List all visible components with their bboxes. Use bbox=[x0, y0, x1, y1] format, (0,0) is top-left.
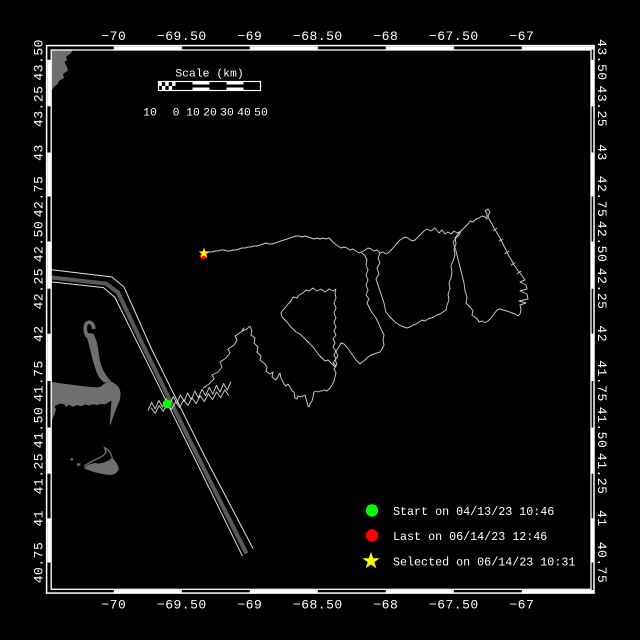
svg-text:42.50: 42.50 bbox=[32, 221, 47, 263]
svg-text:41.25: 41.25 bbox=[32, 453, 47, 495]
svg-text:42.50: 42.50 bbox=[594, 221, 609, 263]
svg-text:43.50: 43.50 bbox=[594, 39, 609, 81]
svg-text:0: 0 bbox=[173, 108, 180, 120]
svg-text:43: 43 bbox=[594, 144, 609, 161]
svg-text:43.25: 43.25 bbox=[594, 86, 609, 128]
svg-text:−67.50: −67.50 bbox=[429, 598, 479, 613]
svg-text:43.25: 43.25 bbox=[32, 86, 47, 128]
svg-text:40.75: 40.75 bbox=[32, 542, 47, 584]
svg-text:−68: −68 bbox=[373, 598, 398, 613]
svg-text:30: 30 bbox=[220, 108, 234, 120]
svg-text:42: 42 bbox=[594, 325, 609, 342]
svg-text:42.25: 42.25 bbox=[32, 268, 47, 310]
svg-text:−69: −69 bbox=[237, 29, 262, 44]
svg-text:42.25: 42.25 bbox=[594, 268, 609, 310]
svg-text:41.75: 41.75 bbox=[32, 360, 47, 402]
svg-text:41.50: 41.50 bbox=[594, 407, 609, 449]
svg-text:42.75: 42.75 bbox=[594, 176, 609, 218]
svg-text:−67: −67 bbox=[509, 598, 534, 613]
svg-text:42.75: 42.75 bbox=[32, 176, 47, 218]
svg-text:−69.50: −69.50 bbox=[157, 598, 207, 613]
svg-text:−68.50: −68.50 bbox=[293, 29, 343, 44]
svg-text:−70: −70 bbox=[101, 29, 126, 44]
svg-text:43.50: 43.50 bbox=[32, 39, 47, 81]
svg-text:41: 41 bbox=[32, 510, 47, 527]
svg-text:Start on 04/13/23 10:46: Start on 04/13/23 10:46 bbox=[393, 505, 554, 519]
svg-text:−69.50: −69.50 bbox=[157, 29, 207, 44]
svg-text:10: 10 bbox=[143, 108, 157, 120]
svg-text:−67: −67 bbox=[509, 29, 534, 44]
svg-text:−68.50: −68.50 bbox=[293, 598, 343, 613]
svg-text:−68: −68 bbox=[373, 29, 398, 44]
svg-text:41.25: 41.25 bbox=[594, 453, 609, 495]
svg-text:41: 41 bbox=[594, 510, 609, 527]
svg-text:40: 40 bbox=[237, 108, 251, 120]
svg-text:43: 43 bbox=[32, 144, 47, 161]
svg-text:Scale (km): Scale (km) bbox=[175, 69, 243, 81]
svg-text:41.75: 41.75 bbox=[594, 360, 609, 402]
svg-text:−69: −69 bbox=[237, 598, 262, 613]
svg-text:42: 42 bbox=[32, 325, 47, 342]
svg-text:40.75: 40.75 bbox=[594, 542, 609, 584]
svg-text:Selected on 06/14/23 10:31: Selected on 06/14/23 10:31 bbox=[393, 556, 575, 570]
svg-text:Last on 06/14/23 12:46: Last on 06/14/23 12:46 bbox=[393, 530, 547, 544]
svg-text:50: 50 bbox=[254, 108, 268, 120]
svg-text:10: 10 bbox=[186, 108, 200, 120]
svg-text:−67.50: −67.50 bbox=[429, 29, 479, 44]
svg-text:20: 20 bbox=[203, 108, 217, 120]
svg-text:41.50: 41.50 bbox=[32, 407, 47, 449]
svg-text:−70: −70 bbox=[101, 598, 126, 613]
